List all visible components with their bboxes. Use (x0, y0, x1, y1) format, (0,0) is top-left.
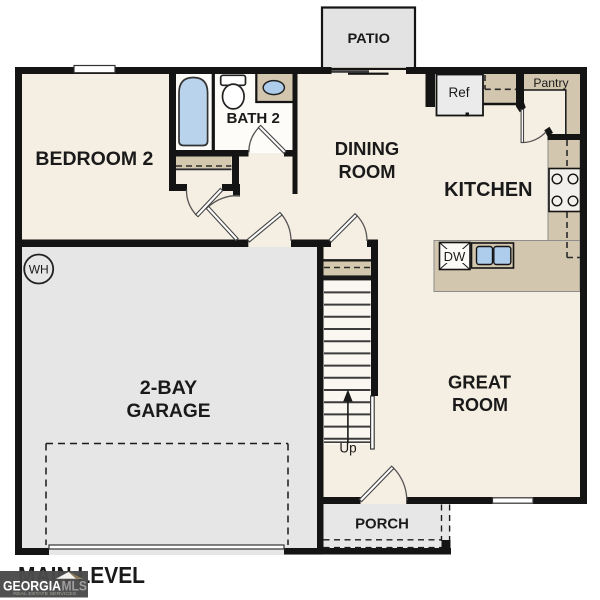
svg-text:GARAGE: GARAGE (127, 400, 211, 422)
svg-text:BEDROOM 2: BEDROOM 2 (35, 148, 153, 170)
svg-text:Ref: Ref (448, 85, 469, 100)
svg-text:DINING: DINING (335, 138, 400, 159)
svg-text:ROOM: ROOM (452, 395, 508, 415)
svg-text:Up: Up (339, 441, 356, 456)
svg-text:PORCH: PORCH (355, 517, 409, 533)
svg-text:GREAT: GREAT (448, 373, 511, 393)
svg-text:DW: DW (444, 249, 466, 264)
svg-text:REAL ESTATE SERVICES: REAL ESTATE SERVICES (13, 591, 76, 596)
svg-text:BATH 2: BATH 2 (227, 111, 280, 127)
svg-text:ROOM: ROOM (339, 161, 396, 182)
svg-text:Pantry: Pantry (533, 76, 569, 90)
svg-text:KITCHEN: KITCHEN (444, 179, 532, 201)
svg-text:2-BAY: 2-BAY (140, 377, 198, 399)
svg-text:PATIO: PATIO (348, 30, 391, 46)
svg-text:WH: WH (29, 263, 49, 277)
